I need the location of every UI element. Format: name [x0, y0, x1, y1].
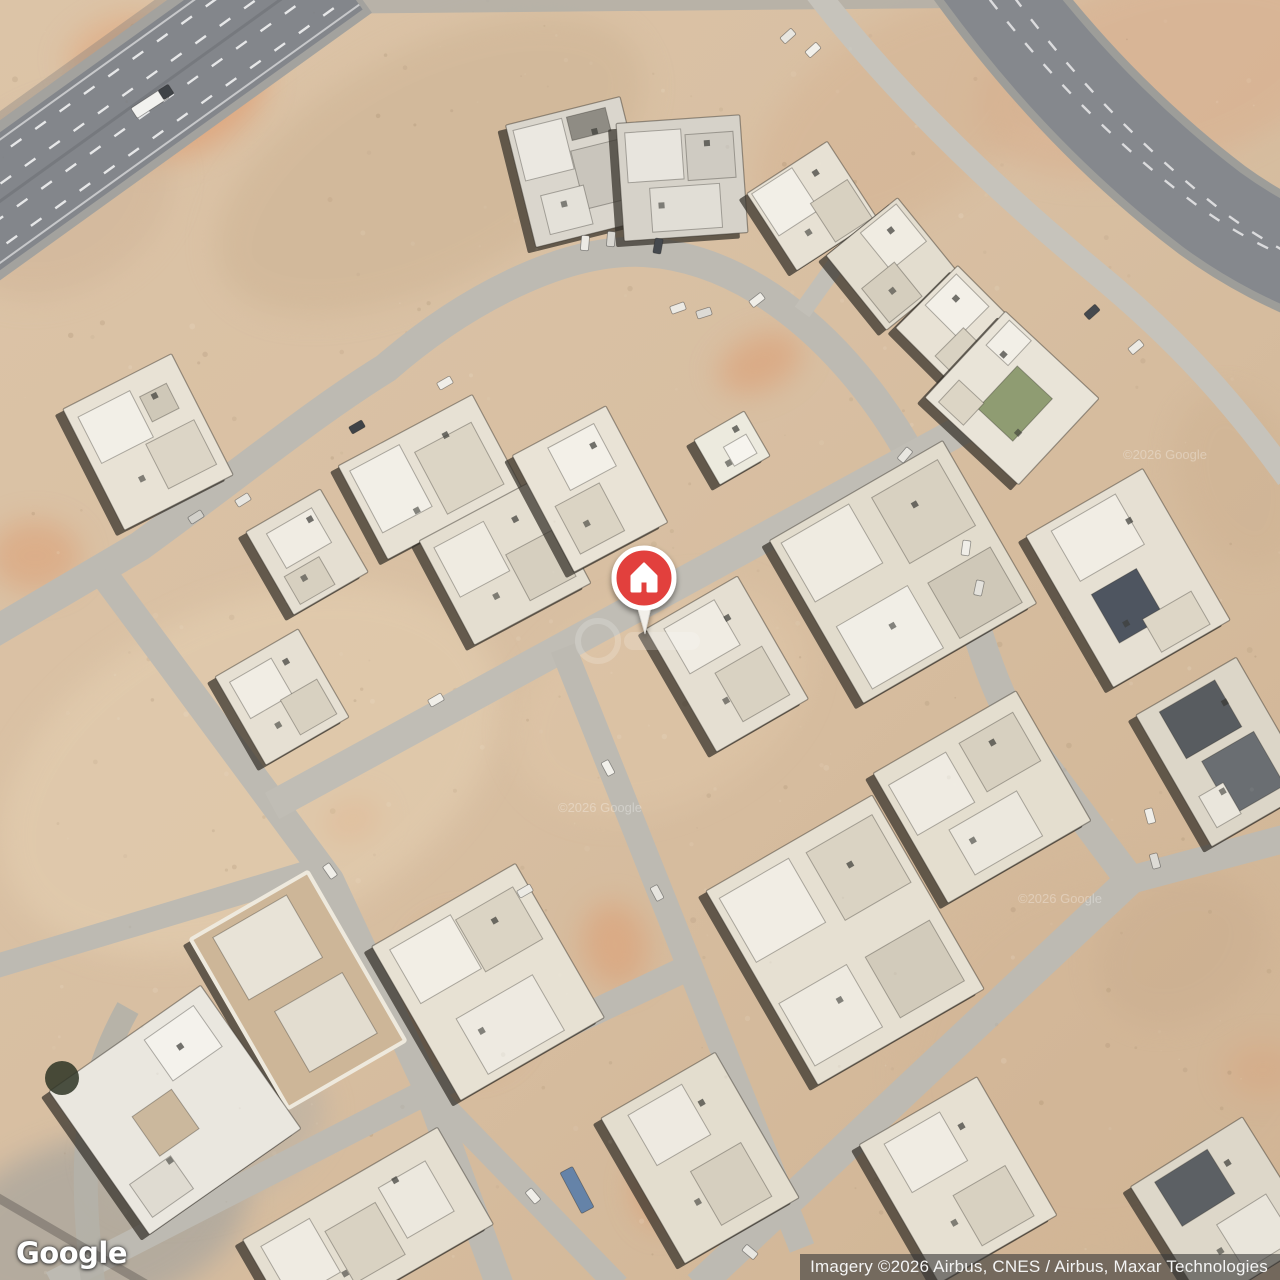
vehicle	[235, 493, 252, 508]
vehicle	[580, 235, 589, 251]
vehicle	[670, 302, 687, 315]
ground-credit-watermark: ©2026 Google	[1123, 447, 1207, 462]
attribution-text: Imagery ©2026 Airbus, CNES / Airbus, Max…	[810, 1257, 1268, 1277]
vehicle	[961, 540, 971, 556]
map-canvas[interactable]: ©2026 Google©2026 Google©2026 Google	[0, 0, 1280, 1280]
vehicle	[560, 1166, 594, 1213]
tree	[45, 1061, 79, 1095]
vehicle	[1084, 304, 1101, 320]
building-right-b	[1136, 657, 1280, 847]
trees	[45, 1061, 79, 1095]
building-complex-right	[616, 115, 748, 241]
vehicle	[1144, 808, 1156, 825]
satellite-map[interactable]: ©2026 Google©2026 Google©2026 Google Goo…	[0, 0, 1280, 1280]
vehicle	[606, 231, 615, 247]
road-top-connector	[300, 0, 958, 6]
vehicle	[437, 376, 454, 390]
ground-credit-watermark: ©2026 Google	[1018, 891, 1102, 906]
vehicle	[780, 28, 797, 44]
google-logo[interactable]: Google	[16, 1236, 127, 1270]
ground-credit-watermark: ©2026 Google	[558, 800, 642, 815]
vehicle	[696, 307, 713, 319]
vehicle	[805, 42, 822, 58]
vehicle	[349, 420, 366, 434]
vehicle	[1128, 339, 1145, 355]
imagery-attribution-bar: Imagery ©2026 Airbus, CNES / Airbus, Max…	[800, 1254, 1280, 1280]
